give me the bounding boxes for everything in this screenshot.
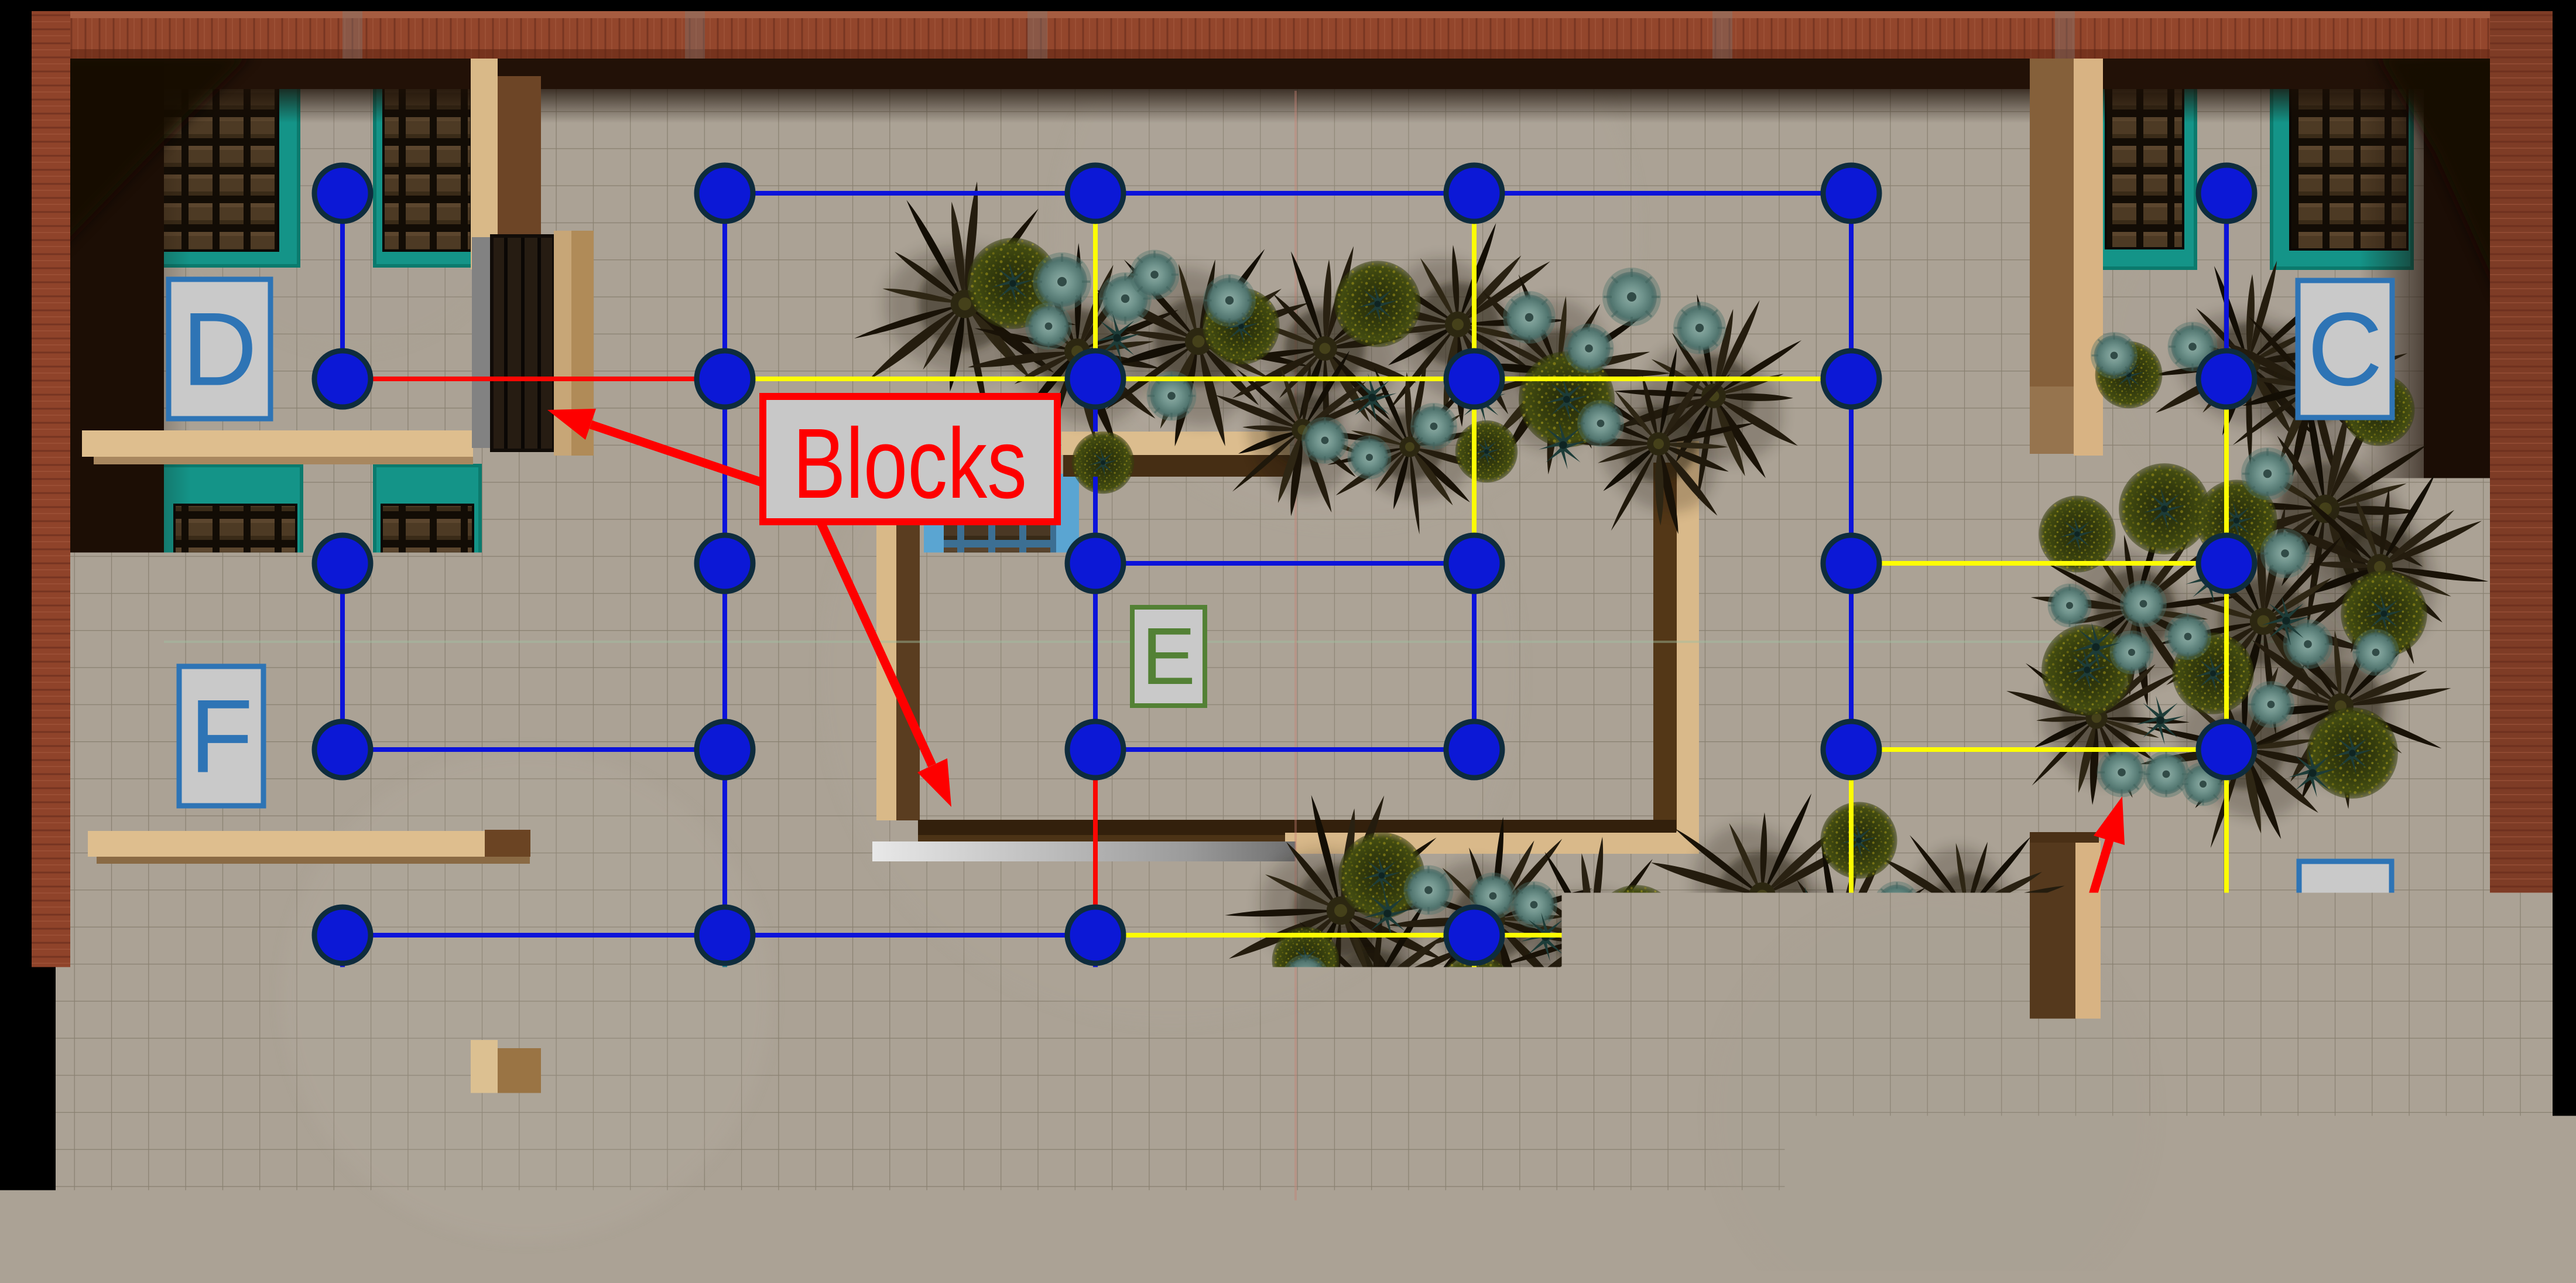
svg-text:C: C: [2307, 291, 2383, 408]
svg-text:Blocks: Blocks: [793, 408, 1027, 519]
svg-text:A: A: [184, 1063, 254, 1179]
svg-text:E: E: [1142, 611, 1195, 702]
svg-text:B: B: [2311, 874, 2380, 990]
svg-text:Bumps: Bumps: [1937, 1048, 2160, 1159]
svg-text:F: F: [190, 678, 254, 795]
svg-text:D: D: [182, 291, 258, 408]
